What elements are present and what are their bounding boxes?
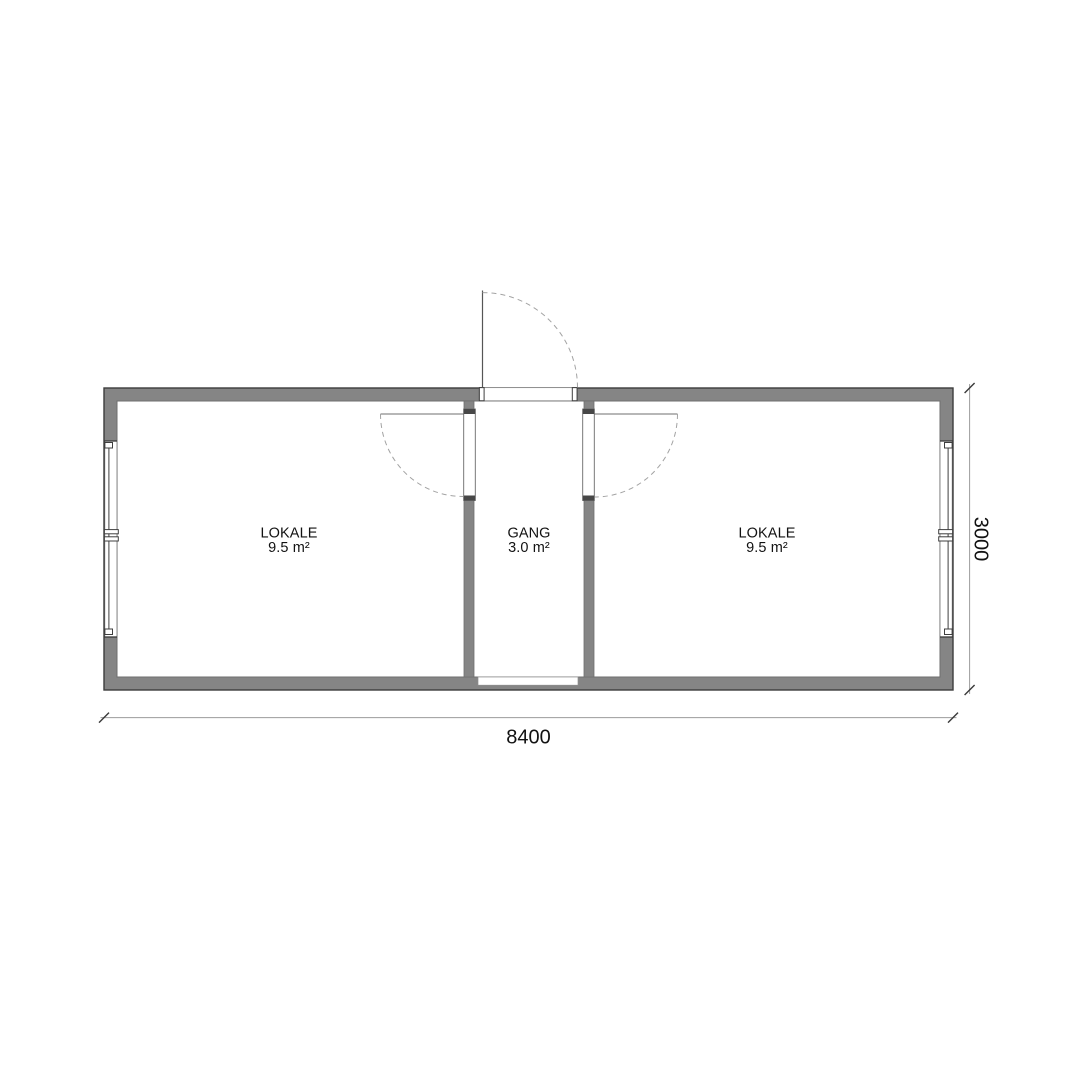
window-left-mullion-bottom [104,537,118,541]
window-right-mullion-top [939,530,953,534]
floor-plan-page: LOKALE 9.5 m² GANG 3.0 m² LOKALE 9.5 m² … [0,0,1080,1080]
dimension-width: 8400 [99,713,958,749]
door-left-jamb-bottom [464,496,476,501]
door-left-frame [464,409,476,501]
room-left-area: 9.5 m² [268,540,310,556]
window-right-mullion-bottom [939,537,953,541]
room-right-area: 9.5 m² [746,540,788,556]
dimension-width-label: 8400 [506,727,551,749]
entry-door-swing-arc [483,293,578,388]
dimension-height: 3000 [965,383,992,695]
room-gang-area: 3.0 m² [508,540,550,556]
window-right [939,441,953,637]
door-left-jamb-top [464,409,476,414]
entry-door-opening [479,388,577,401]
door-right-jamb-top [583,409,595,414]
window-left [104,441,118,637]
door-right-jamb-bottom [583,496,595,501]
corridor-floor-recess [478,677,578,685]
window-left-cap-top [105,443,113,449]
door-right-frame [583,409,595,501]
floor-plan-drawing: LOKALE 9.5 m² GANG 3.0 m² LOKALE 9.5 m² … [0,0,1080,1080]
window-right-cap-top [945,443,953,449]
window-left-cap-bottom [105,629,113,635]
window-right-cap-bottom [945,629,953,635]
entry-door [479,291,577,401]
window-left-mullion-top [104,530,118,534]
dimension-height-label: 3000 [970,517,992,562]
